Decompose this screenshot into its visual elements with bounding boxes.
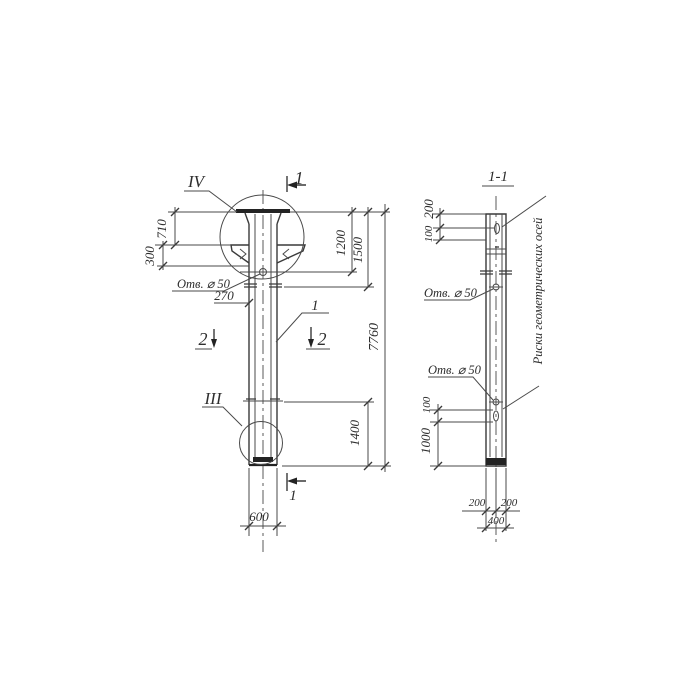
engineering-drawing-column: IV III 1 1 2 2 xyxy=(0,0,700,700)
dim-400-text: 400 xyxy=(488,515,505,527)
section-2-left-label: 2 xyxy=(199,329,208,349)
detail-IV-label: IV xyxy=(187,172,207,191)
dim-1400-text: 1400 xyxy=(347,420,362,447)
detail-IV-leader xyxy=(184,191,237,212)
dim-270-text: 270 xyxy=(214,288,234,303)
dim-1400: 1400 xyxy=(347,398,372,470)
dim-600-text: 600 xyxy=(249,509,269,524)
detail-III-label: III xyxy=(204,389,223,408)
detail-III-leader xyxy=(202,407,242,426)
section-mark-2-right: 2 xyxy=(306,327,330,349)
section-hole-note-bottom: Отв. ⌀ 50 xyxy=(428,363,493,400)
section-view: 1-1 200 100 xyxy=(418,169,546,545)
position-1-label: 1 xyxy=(311,298,319,314)
section-bottom-extensions xyxy=(430,410,493,466)
section-hole-note-top: Отв. ⌀ 50 xyxy=(424,286,493,300)
dim-1500: 1500 xyxy=(350,207,372,291)
dim-1000-text: 1000 xyxy=(418,428,433,455)
drawing-svg: IV III 1 1 2 2 xyxy=(0,0,700,700)
dim-200-bl-text: 200 xyxy=(469,497,486,509)
axis-mark-slot-top xyxy=(495,224,500,234)
dim-200-top-text: 200 xyxy=(421,199,436,219)
dim-270: 270 xyxy=(214,288,253,307)
dim-300: 300 xyxy=(142,241,167,270)
dim-1200-text: 1200 xyxy=(333,230,348,257)
section-2-right-label: 2 xyxy=(318,329,327,349)
section-width-dims: 200 200 400 xyxy=(462,468,520,532)
section-mark-1-top: 1 xyxy=(287,168,306,192)
axes-note-leader-bottom xyxy=(503,386,539,409)
dim-300-text: 300 xyxy=(142,246,157,267)
axes-note: Риски геометрических осей xyxy=(502,196,546,409)
cap-plate xyxy=(236,209,290,213)
section-1-bottom-label: 1 xyxy=(289,488,297,504)
section-bottom-plate xyxy=(486,458,506,465)
core-bottom-plate xyxy=(253,457,273,462)
left-extension-lines xyxy=(155,245,249,266)
section-1-top-label: 1 xyxy=(295,168,304,188)
dim-100-bottom-text: 100 xyxy=(421,396,433,413)
dim-200-top: 200 100 xyxy=(421,199,444,244)
front-view: IV III 1 1 2 2 xyxy=(142,168,391,552)
section-hole-note-top-text: Отв. ⌀ 50 xyxy=(424,286,478,300)
dim-7760-text: 7760 xyxy=(367,323,382,351)
section-mark-2-left: 2 xyxy=(195,329,217,349)
dim-100-bottom: 100 1000 xyxy=(418,396,442,470)
axes-note-text: Риски геометрических осей xyxy=(531,217,545,365)
section-hole-note-bottom-text: Отв. ⌀ 50 xyxy=(428,363,482,377)
dim-710: 710 xyxy=(154,207,179,249)
dim-200-br-text: 200 xyxy=(501,497,518,509)
section-title: 1-1 xyxy=(488,169,508,185)
dim-100-top-text: 100 xyxy=(423,225,435,242)
section-mark-1-bottom: 1 xyxy=(287,473,306,504)
dim-1500-text: 1500 xyxy=(350,237,365,264)
dim-7760: 7760 xyxy=(367,204,389,472)
dim-710-text: 710 xyxy=(154,219,169,239)
section-top-extensions xyxy=(433,214,494,240)
